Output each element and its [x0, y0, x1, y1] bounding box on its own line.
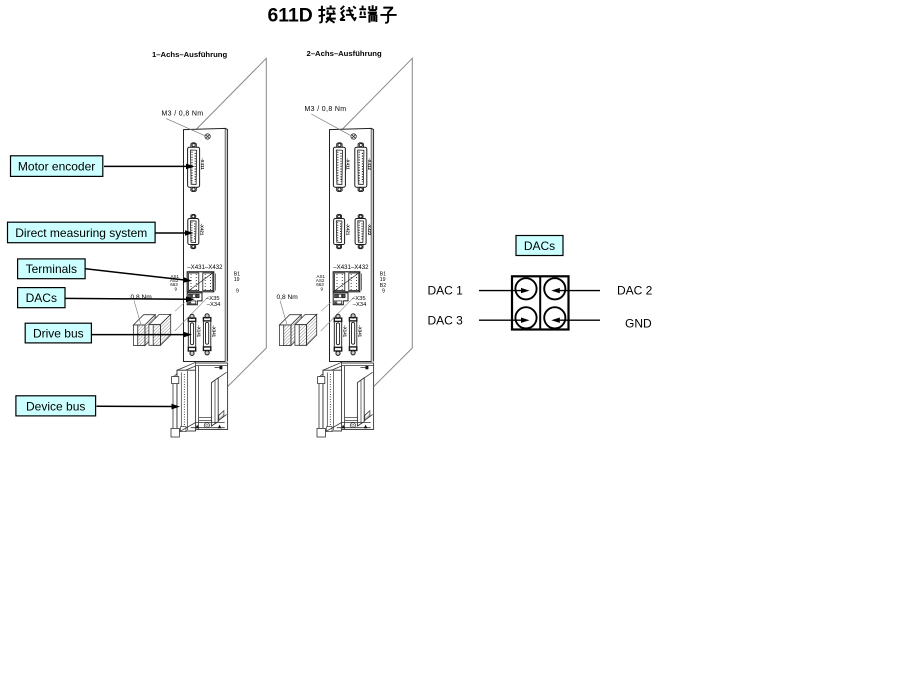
svg-text:611D: 611D	[268, 5, 313, 27]
svg-text:0,8 Nm: 0,8 Nm	[277, 294, 299, 301]
svg-text:-X411: -X411	[200, 158, 205, 170]
svg-text:DACs: DACs	[524, 239, 555, 253]
svg-text:DAC 3: DAC 3	[428, 314, 464, 328]
svg-text:-X341: -X341	[212, 325, 217, 337]
svg-text:GND: GND	[625, 317, 652, 331]
svg-text:0,8 Nm: 0,8 Nm	[131, 294, 153, 301]
svg-text:DAC 1: DAC 1	[428, 284, 464, 298]
svg-text:9: 9	[382, 289, 385, 295]
svg-text:Motor encoder: Motor encoder	[18, 160, 95, 174]
svg-text:-X421: -X421	[345, 224, 350, 236]
svg-text:1–Achs–Ausführung: 1–Achs–Ausführung	[152, 50, 227, 59]
svg-text:Drive bus: Drive bus	[33, 326, 84, 340]
svg-text:-X141: -X141	[197, 325, 202, 337]
svg-text:-X341: -X341	[358, 325, 363, 337]
svg-text:M3 / 0,8 Nm: M3 / 0,8 Nm	[305, 106, 347, 113]
svg-text:–X431–X432: –X431–X432	[187, 264, 223, 271]
svg-text:2–Achs–Ausführung: 2–Achs–Ausführung	[307, 49, 382, 58]
svg-text:DACs: DACs	[26, 291, 57, 305]
svg-text:9: 9	[174, 286, 177, 291]
svg-text:DAC 2: DAC 2	[617, 284, 653, 298]
svg-text:-X422: -X422	[367, 224, 372, 236]
svg-text:–X431–X432: –X431–X432	[333, 264, 369, 271]
svg-text:–X35: –X35	[352, 296, 366, 302]
svg-text:–X34: –X34	[353, 302, 367, 308]
svg-text:-X421: -X421	[200, 224, 205, 236]
svg-text:Direct measuring system: Direct measuring system	[15, 226, 147, 240]
svg-text:M3 / 0,8 Nm: M3 / 0,8 Nm	[162, 110, 204, 117]
svg-text:19: 19	[234, 277, 240, 283]
svg-text:-X141: -X141	[343, 325, 348, 337]
svg-text:–X34: –X34	[207, 302, 221, 308]
svg-text:9: 9	[236, 289, 239, 295]
svg-text:-X412: -X412	[367, 158, 372, 170]
svg-text:Device bus: Device bus	[26, 399, 85, 413]
svg-text:–X35: –X35	[206, 296, 220, 302]
svg-text:Terminals: Terminals	[26, 262, 77, 276]
svg-text:-X411: -X411	[346, 158, 351, 170]
svg-text:9: 9	[320, 286, 323, 291]
